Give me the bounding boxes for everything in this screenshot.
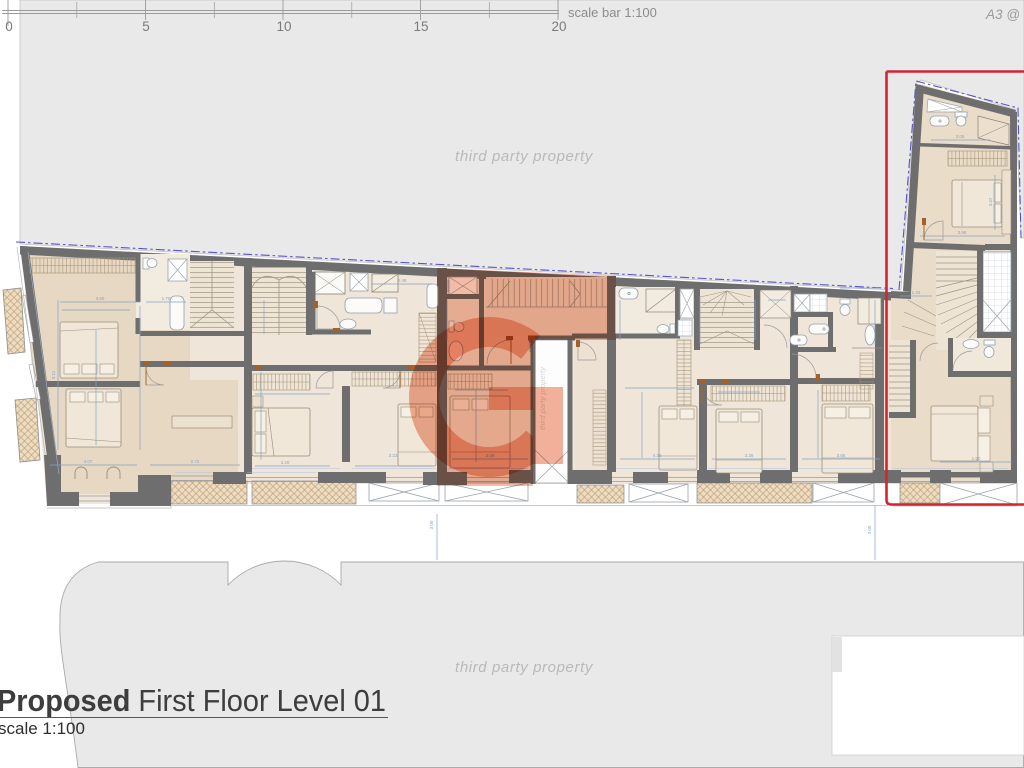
svg-text:3.00: 3.00 bbox=[429, 520, 434, 529]
svg-text:A3 @: A3 @ bbox=[985, 7, 1020, 22]
svg-text:3.11: 3.11 bbox=[51, 370, 56, 379]
svg-text:Proposed First Floor Level 01: Proposed First Floor Level 01 bbox=[0, 683, 386, 718]
svg-text:20: 20 bbox=[551, 19, 566, 34]
svg-text:4.07: 4.07 bbox=[84, 459, 93, 464]
svg-text:3.98: 3.98 bbox=[958, 230, 967, 235]
svg-text:1.34: 1.34 bbox=[912, 290, 921, 295]
svg-text:10: 10 bbox=[276, 19, 291, 34]
svg-text:3.23: 3.23 bbox=[389, 453, 398, 458]
svg-text:third party property: third party property bbox=[455, 659, 594, 676]
svg-text:0: 0 bbox=[5, 19, 13, 34]
svg-text:scale bar 1:100: scale bar 1:100 bbox=[568, 5, 657, 20]
svg-text:2.72: 2.72 bbox=[191, 459, 200, 464]
svg-text:1.70: 1.70 bbox=[162, 296, 171, 301]
svg-text:5: 5 bbox=[142, 19, 150, 34]
svg-text:1.50: 1.50 bbox=[972, 456, 981, 461]
svg-text:3.47: 3.47 bbox=[988, 197, 993, 206]
svg-text:3.20: 3.20 bbox=[281, 460, 290, 465]
svg-text:3.60: 3.60 bbox=[96, 296, 105, 301]
svg-text:4.28: 4.28 bbox=[653, 453, 662, 458]
svg-text:3.65: 3.65 bbox=[837, 453, 846, 458]
svg-text:2.48: 2.48 bbox=[398, 278, 407, 283]
svg-text:scale 1:100: scale 1:100 bbox=[0, 719, 85, 738]
svg-text:3.00: 3.00 bbox=[867, 525, 872, 534]
svg-text:15: 15 bbox=[413, 19, 428, 34]
svg-text:3.26: 3.26 bbox=[745, 453, 754, 458]
svg-text:third party property: third party property bbox=[455, 148, 594, 165]
svg-text:3.00: 3.00 bbox=[956, 134, 965, 139]
